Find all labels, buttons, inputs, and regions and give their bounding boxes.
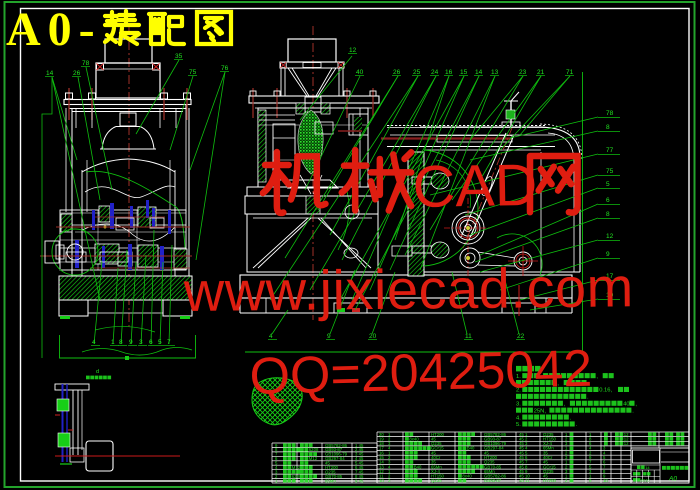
svg-text:40: 40 xyxy=(623,402,629,408)
svg-text:10: 10 xyxy=(379,478,384,483)
svg-text:13: 13 xyxy=(491,69,499,76)
svg-text:24: 24 xyxy=(431,69,439,76)
svg-text:M12: M12 xyxy=(292,465,301,470)
svg-text:6208: 6208 xyxy=(309,447,319,452)
svg-text:1: 1 xyxy=(111,339,115,346)
svg-text:22: 22 xyxy=(517,333,525,340)
svg-text:8x40: 8x40 xyxy=(409,436,419,441)
svg-text:71: 71 xyxy=(566,69,574,76)
svg-text:35: 35 xyxy=(175,53,183,60)
svg-text:26: 26 xyxy=(393,69,401,76)
svg-text:11: 11 xyxy=(465,333,472,340)
svg-text:77: 77 xyxy=(606,147,614,154)
svg-text:78: 78 xyxy=(606,110,614,117)
svg-text:78: 78 xyxy=(82,60,90,67)
svg-text:10: 10 xyxy=(603,478,608,483)
svg-text:B40: B40 xyxy=(467,446,475,451)
svg-text:CAD: CAD xyxy=(412,152,538,220)
svg-text:B40: B40 xyxy=(414,464,422,469)
svg-text:6: 6 xyxy=(606,197,610,204)
svg-text:4: 4 xyxy=(269,333,273,340)
svg-text:21: 21 xyxy=(537,69,545,76)
svg-text:7: 7 xyxy=(167,339,171,346)
svg-text:65Mn: 65Mn xyxy=(325,478,336,483)
svg-text:3: 3 xyxy=(139,339,143,346)
svg-text:6: 6 xyxy=(149,339,153,346)
svg-text:3.: 3. xyxy=(516,402,521,408)
svg-text:25N,: 25N, xyxy=(534,408,547,414)
svg-text:26: 26 xyxy=(73,70,81,77)
svg-text:14: 14 xyxy=(46,70,54,77)
svg-text:20: 20 xyxy=(369,333,377,340)
svg-text:5: 5 xyxy=(158,339,162,346)
svg-text:14: 14 xyxy=(645,465,650,470)
svg-text:8: 8 xyxy=(606,124,610,131)
svg-text:d: d xyxy=(96,369,99,375)
svg-text:76: 76 xyxy=(221,65,229,72)
svg-text:4.: 4. xyxy=(516,415,521,421)
svg-text:9 45: 9 45 xyxy=(355,478,364,483)
svg-text:12: 12 xyxy=(349,47,357,54)
svg-text:8: 8 xyxy=(606,211,610,218)
svg-text:www.jixiecad.com: www.jixiecad.com xyxy=(182,255,634,323)
svg-text:75: 75 xyxy=(606,168,614,175)
svg-text:12: 12 xyxy=(606,233,614,240)
svg-text:4: 4 xyxy=(92,339,96,346)
svg-text:9: 9 xyxy=(129,339,133,346)
svg-text:QQ=20425042: QQ=20425042 xyxy=(249,340,593,406)
svg-text:GB93-87: GB93-87 xyxy=(484,478,502,483)
svg-text:8x40: 8x40 xyxy=(462,474,472,479)
svg-text:45 11: 45 11 xyxy=(519,478,530,483)
svg-text:23: 23 xyxy=(519,69,527,76)
svg-text:A0-: A0- xyxy=(6,3,102,56)
svg-text:40: 40 xyxy=(356,69,364,76)
svg-text:HT200: HT200 xyxy=(543,478,557,483)
svg-text:5: 5 xyxy=(606,181,610,188)
svg-text:75: 75 xyxy=(189,69,197,76)
svg-text:5.: 5. xyxy=(516,422,521,428)
svg-text:0.16,: 0.16, xyxy=(599,388,612,394)
svg-text:25: 25 xyxy=(413,69,421,76)
svg-text:A0: A0 xyxy=(668,476,677,483)
svg-text:12: 12 xyxy=(624,441,629,446)
svg-text:2010: 2010 xyxy=(641,477,650,482)
svg-text:15: 15 xyxy=(460,69,468,76)
svg-text:Q235: Q235 xyxy=(431,478,442,483)
svg-text:14: 14 xyxy=(475,69,483,76)
svg-text:8: 8 xyxy=(119,339,123,346)
svg-text:9: 9 xyxy=(327,333,331,340)
svg-text:16: 16 xyxy=(445,69,453,76)
svg-text:M12: M12 xyxy=(309,456,318,461)
